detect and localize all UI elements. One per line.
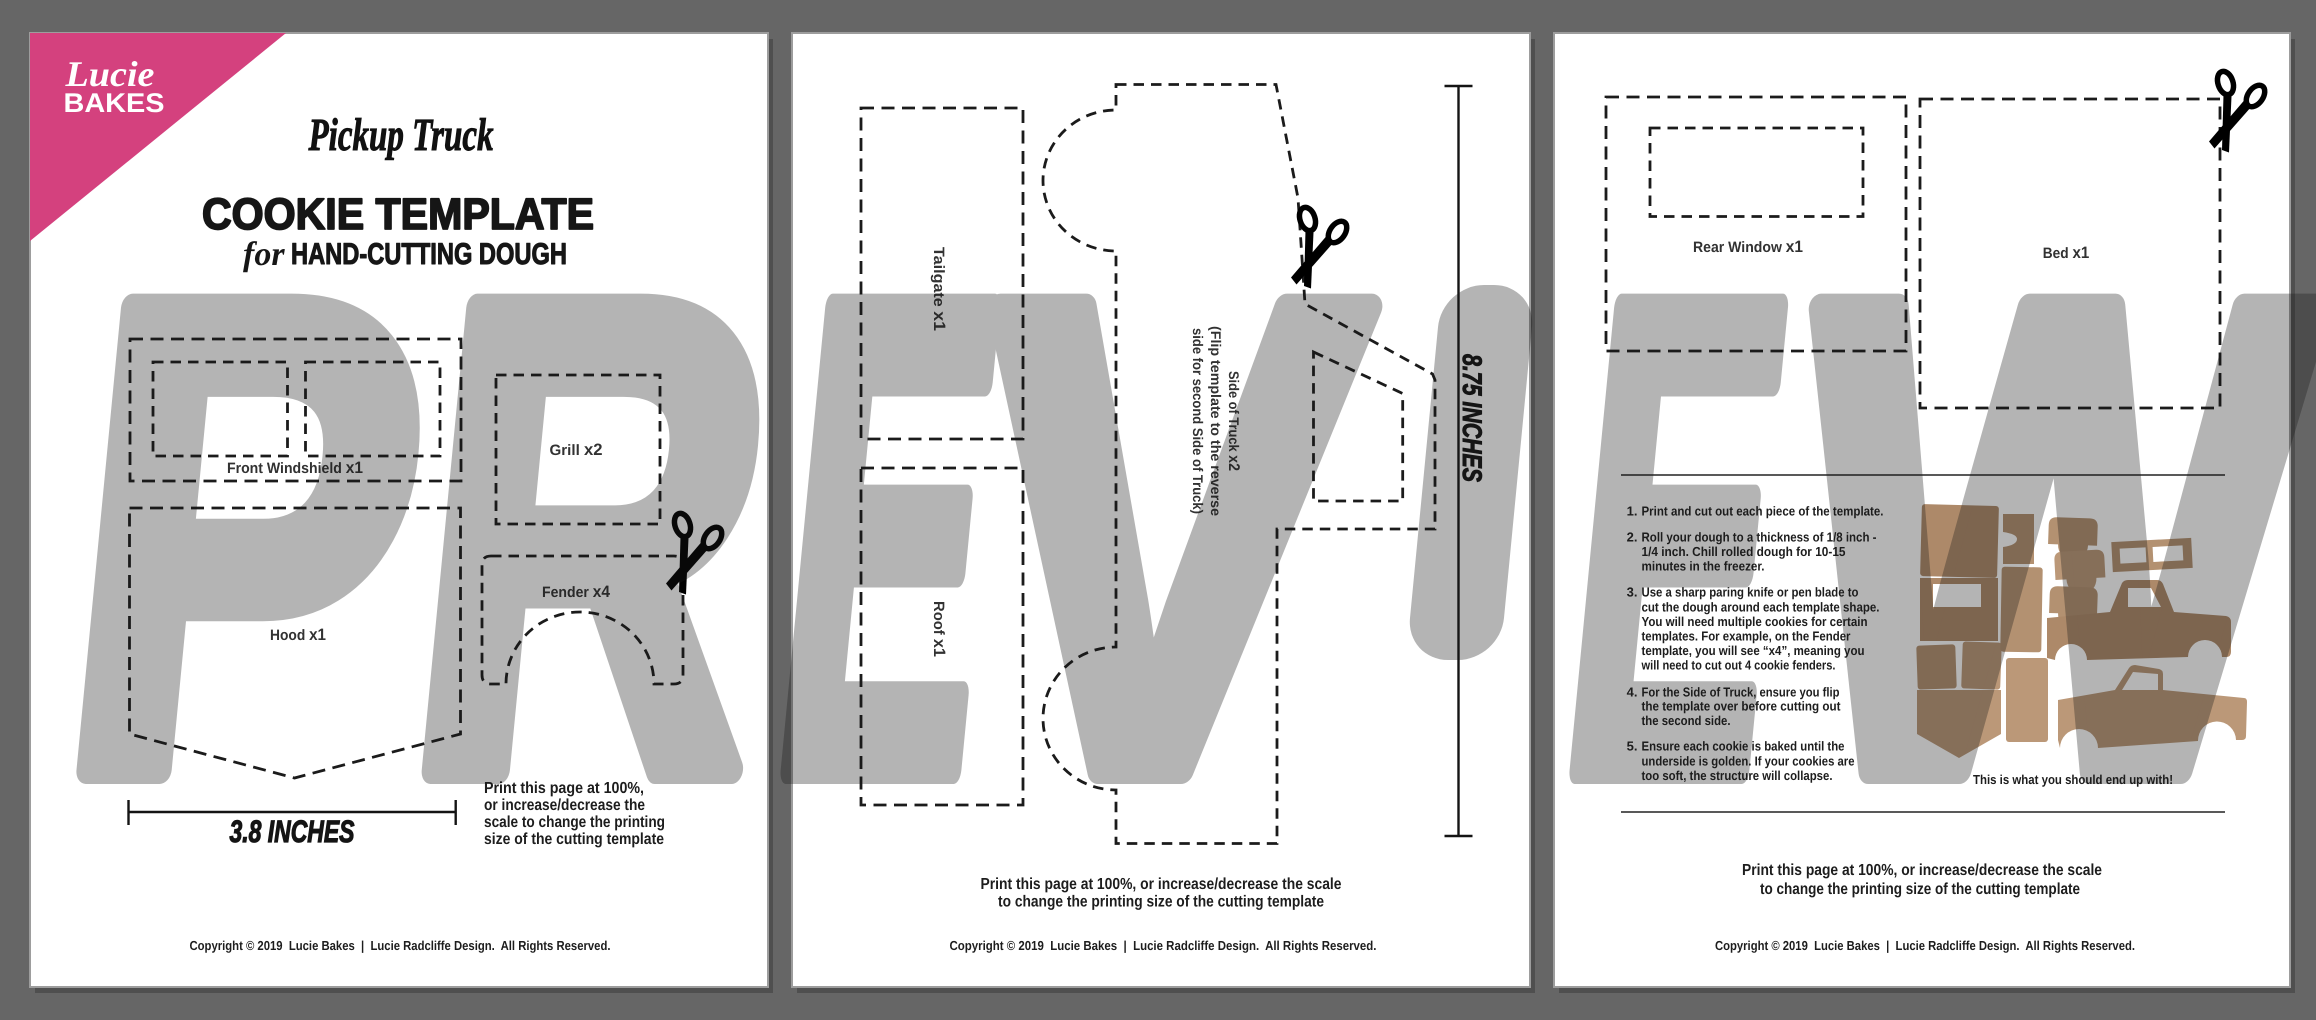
svg-text:W: W — [1761, 163, 2316, 913]
svg-text:Copyright © 2019 Lucie Bakes: Copyright © 2019 Lucie Bakes | Lucie Rad… — [1715, 938, 2135, 953]
svg-text:Copyright © 2019 Lucie Bakes: Copyright © 2019 Lucie Bakes | Lucie Rad… — [950, 938, 1377, 953]
svg-text:Copyright © 2019 Lucie Bakes: Copyright © 2019 Lucie Bakes | Lucie Rad… — [190, 938, 611, 953]
svg-text:P: P — [39, 163, 453, 913]
svg-text:V: V — [937, 163, 1391, 913]
svg-text:Pickup Truck: Pickup Truck — [308, 109, 494, 160]
svg-text:R: R — [386, 163, 801, 913]
svg-text:BAKES: BAKES — [64, 88, 165, 118]
